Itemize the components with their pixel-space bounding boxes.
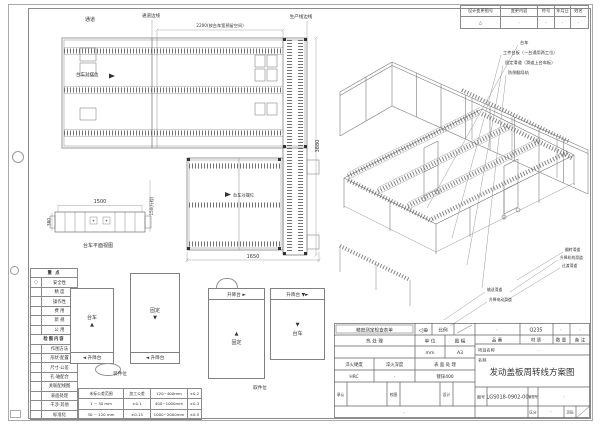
division-value: · [550,411,551,416]
material-label: 材 质 [531,337,542,344]
checklist-row: 表面处理 [31,392,77,401]
diagram-d-box: ▼ 台车 [270,299,325,360]
rev-cell: · [555,17,571,28]
checklist-row: 关联配线图 [31,382,77,391]
scale-label: 比例 [438,327,448,334]
rev-cell: · [571,17,586,28]
plan1-corner-blocks [283,38,307,255]
dim-3880: 3880 [315,140,321,153]
loading-position-caption: 装件位 [100,371,140,377]
qty-label: 数 量 [556,337,567,344]
diagram-d-label: 台车 [292,330,302,337]
up-arrow-icon: ▲ [235,332,239,337]
remark-label: 备 注 [575,337,586,344]
label-aisle: 通道 [85,16,95,23]
down-arrow-icon: ▼ [296,323,300,328]
checklist-row: ○安全性 [31,278,77,287]
format-value: A3 [457,350,463,356]
iso-lower-left-lane [340,246,410,306]
iso-left-fence [340,62,392,136]
rev-cell: · [501,17,538,28]
callout-transition-slide: 过渡滑道 [562,263,577,268]
format-label: 图 幅 [455,338,466,345]
material-value: Q235 [530,328,543,334]
pickup-position-caption: 取件位 [240,385,280,391]
isometric-view: 台车 工件台板（一台通用两工位） 固定滑道（滑道上台车板） 防侧翻导轨 翻转滑道… [332,28,592,328]
dim-380: 380 [47,218,52,226]
callout-electric-slide: 升降电动滑道 [489,297,512,302]
revision-table: 设计变更图号 变更内容 符号 年月日 姓名 △ · · · · [460,5,589,29]
callout-flip-slide: 翻转滑道 [565,247,580,252]
diagram-a-box: 台车 ▲ [70,288,114,354]
dimension-lines [52,20,321,262]
label-aisle-edge: 通道边线 [142,12,160,19]
tolerance-row: 1 ~ 30 mm ±0.1 400~1000mm ±0.3 [79,399,201,409]
quench-hardness-label: 淬火硬度 [345,361,363,368]
project-name-value: · [538,349,539,354]
rev-header-symbol: 符号 [538,6,555,17]
callout-trolley: 台车 [520,39,528,46]
heat-treatment-label: 热 处 理 [366,338,383,345]
surface-treatment-label: 表 面 处 理 [434,361,456,368]
part-no-value: · [496,329,497,334]
diagram-a-label: 台车 [87,314,97,321]
division-label: 区分 [529,410,537,415]
plan1-trolley-label: 台车对摆位 [76,71,99,78]
checklist-header: 重 点 [31,269,77,278]
checklist-row: 孔·轴配合 [31,373,77,382]
accuracy-check-stamp: 精度测定检查表单 [356,327,393,334]
rev-header-content: 变更内容 [501,6,538,17]
dim-2200: 2200(按台车宽预留空间) [196,22,244,29]
callout-pallet: 工件台板（一台通用两工位） [503,49,557,56]
side-view-caption: 台车平面视图 [83,242,113,249]
rev-header-drawing-no: 设计变更图号 [461,6,501,17]
tolerance-row: 30 ~ 120 mm ±0.15 1000~2000mm ±0.5 [79,410,201,419]
drawing-sheet: 通道 通道边线 生产线边线 2200(按台车宽预留空间) 台车对摆位 3880 … [0,0,600,424]
corner-mark [10,410,21,418]
callout-guide-rail: 防侧翻导轨 [508,69,530,76]
diagram-b-label: 固定 [150,307,160,314]
quench-depth-label: 淬火深度 [386,361,404,368]
qty-value: · [560,329,561,334]
quench-hardness-value: HRC [349,374,358,380]
projection-symbol-icon: ◁⊕ [419,327,429,334]
plan2-trolley-arrow [225,192,231,197]
rev-header-date: 年月日 [555,6,571,17]
diagram-c-label: 固定 [231,339,241,346]
project-name-label: 项目名称 [478,347,495,354]
rev-header-name: 姓名 [571,6,586,17]
remark-value: · [579,329,580,334]
title-block: 精度测定检查表单 ◁⊕ 比例 热 处 理 单 位 图 幅 mm A3 淬火硬度 … [334,323,590,418]
quench-depth-value: · [394,375,395,380]
iso-lifter-1 [422,141,440,201]
iso-deck [344,109,574,224]
plan2-trolley-label: 台车对摆位 [233,192,254,199]
plan1-outline [62,38,307,255]
page-label: 页码 [566,410,574,415]
check-label: 校图 [390,392,398,397]
plan1-details [80,48,277,120]
punch-hole-top [12,151,24,163]
drawing-no-label: 图号 [477,394,485,400]
side-view [50,212,151,232]
iso-roller-lanes [348,108,572,222]
mgmt-no-label: 管理号 [528,394,538,399]
plan2-roller-bands [189,166,281,244]
down-arrow-icon: ▼ [153,316,157,321]
iso-back-fence [392,62,588,194]
drawing-no: LGS018-0902-00 [486,395,528,401]
checklist-row: 标准化 [31,411,77,419]
drawing-title: 发动盖板周转线方案图 [489,367,574,378]
checklist-row: 干涉·其他 [31,401,77,410]
rev-cell: · [538,17,555,28]
approve-label: 承认 [337,392,345,397]
callout-conveyor-slide: 输送滑道 [487,287,502,292]
bottom-dot: · [403,410,405,416]
unit-label: 单 位 [425,338,436,345]
checklist-row: 尺寸·公差 [31,363,77,372]
label-prod-edge: 生产线边线 [290,13,313,20]
tolerance-table: 未标公差范围 加工公差 120~400mm ±0.2 1 ~ 30 mm ±0.… [78,388,202,420]
plan-views: 通道 通道边线 生产线边线 2200(按台车宽预留空间) 台车对摆位 3880 … [48,8,334,274]
surface-treatment-value: 镀锌400 [436,373,453,380]
mgmt-no-value: · [563,396,564,401]
part-no-label: 品 番 [492,337,503,344]
plan1-trolley-arrow [109,74,115,79]
design-label: 设计 [443,392,451,397]
iso-lifter-2 [502,159,520,219]
tolerance-row: 未标公差范围 加工公差 120~400mm ±0.2 [79,389,201,399]
callout-fixed-slide: 固定滑道（滑道上台车板） [505,59,555,66]
dim-1500: 1500 [94,199,107,205]
up-arrow-icon: ▲ [90,323,94,328]
diagram-b-lift-bar: ◄ 升降台 [130,352,180,364]
unit-value: mm [426,351,435,356]
punch-hole-bottom [10,266,19,275]
dim-stroke: 150(行程) [148,196,154,215]
diagram-b-box: 固定 ▼ [130,273,180,354]
name-label: 名称 [478,357,486,364]
rev-cell: △ [461,17,501,28]
dim-1650: 1650 [247,254,260,260]
callout-lift-slide: 升降机构滑道 [560,255,583,260]
diagram-c-box: ▲ 固定 [208,299,265,379]
